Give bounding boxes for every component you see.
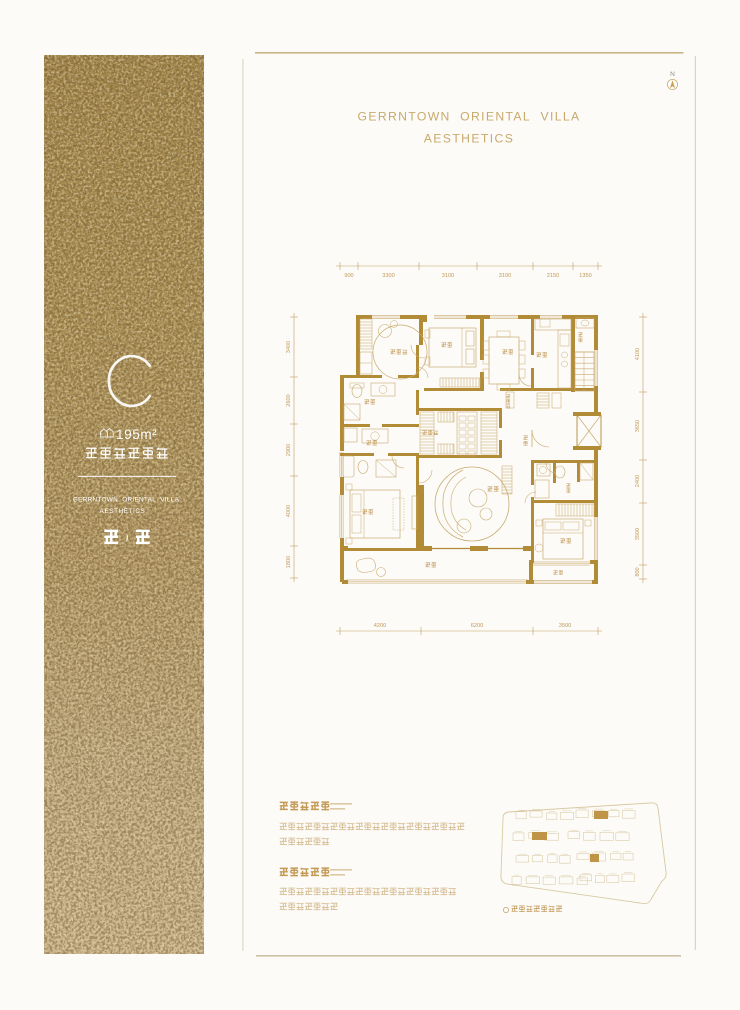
svg-text:1800: 1800 — [286, 556, 292, 568]
svg-text:AESTHETICS: AESTHETICS — [100, 508, 146, 515]
svg-text:GERRNTOWN ORIENTAL VILLA: GERRNTOWN ORIENTAL VILLA — [73, 497, 180, 504]
svg-text:3400: 3400 — [286, 341, 292, 353]
svg-text:195m²: 195m² — [116, 427, 157, 442]
svg-text:4000: 4000 — [286, 505, 292, 517]
svg-text:3100: 3100 — [499, 273, 511, 279]
svg-text:3300: 3300 — [382, 273, 394, 279]
svg-text:3650: 3650 — [635, 420, 641, 432]
svg-text:2900: 2900 — [286, 444, 292, 456]
svg-text:6200: 6200 — [471, 623, 483, 629]
svg-text:3100: 3100 — [442, 273, 454, 279]
svg-text:900: 900 — [344, 273, 353, 279]
svg-text:2400: 2400 — [635, 475, 641, 487]
svg-text:AESTHETICS: AESTHETICS — [424, 132, 515, 146]
svg-text:2150: 2150 — [547, 273, 559, 279]
svg-text:3500: 3500 — [559, 623, 571, 629]
svg-text:2600: 2600 — [286, 394, 292, 406]
svg-text:3500: 3500 — [635, 528, 641, 540]
svg-text:GERRNTOWN ORIENTAL VILLA: GERRNTOWN ORIENTAL VILLA — [358, 110, 581, 124]
svg-text:800: 800 — [635, 567, 641, 576]
svg-text:1350: 1350 — [579, 273, 591, 279]
svg-text:4100: 4100 — [635, 348, 641, 360]
svg-text:N: N — [670, 71, 675, 78]
svg-text:4200: 4200 — [374, 623, 386, 629]
